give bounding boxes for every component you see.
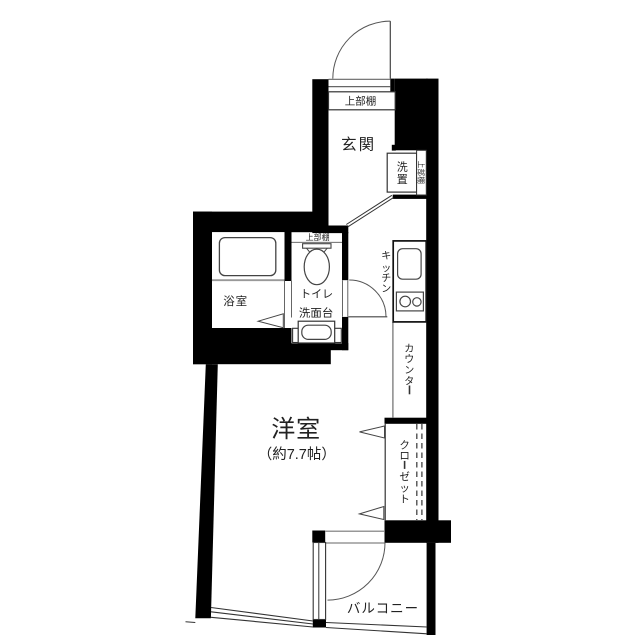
svg-text:トイレ: トイレ <box>300 289 333 301</box>
svg-text:ト: ト <box>399 494 410 506</box>
svg-text:上部棚: 上部棚 <box>306 232 330 242</box>
svg-text:ウ: ウ <box>404 354 414 366</box>
svg-text:ン: ン <box>381 284 391 295</box>
svg-text:ロ: ロ <box>399 450 410 462</box>
svg-text:洋室: 洋室 <box>271 416 321 443</box>
svg-text:洗: 洗 <box>397 161 408 174</box>
svg-text:チ: チ <box>381 272 391 284</box>
svg-text:置: 置 <box>397 173 408 186</box>
svg-text:浴室: 浴室 <box>223 294 248 308</box>
svg-text:（約7.7帖）: （約7.7帖） <box>258 446 336 463</box>
svg-text:キ: キ <box>381 251 391 262</box>
svg-text:上部棚: 上部棚 <box>417 161 427 184</box>
svg-text:玄関: 玄関 <box>341 136 376 154</box>
svg-text:上部棚: 上部棚 <box>345 95 377 108</box>
svg-text:バルコニー: バルコニー <box>347 601 419 616</box>
svg-text:ン: ン <box>404 366 414 377</box>
svg-text:ゼ: ゼ <box>399 471 410 483</box>
svg-text:カ: カ <box>404 343 414 355</box>
